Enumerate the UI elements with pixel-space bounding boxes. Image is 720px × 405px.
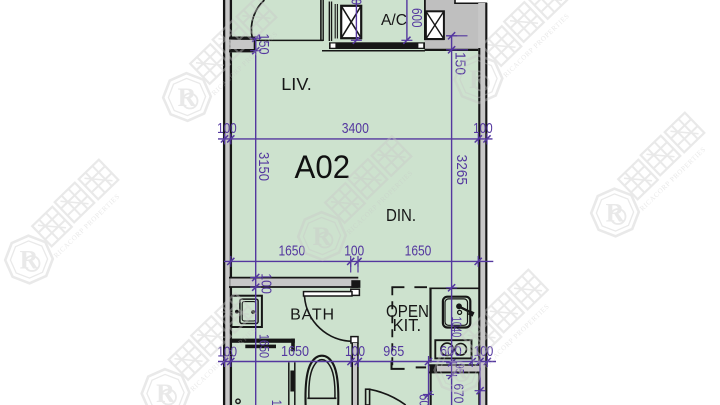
svg-text:0: 0 (347, 0, 364, 5)
svg-text:1650: 1650 (257, 334, 272, 358)
svg-text:1650: 1650 (281, 343, 309, 360)
svg-text:1650: 1650 (405, 243, 432, 260)
svg-text:600: 600 (416, 394, 431, 405)
svg-text:1: 1 (269, 400, 284, 405)
svg-text:600: 600 (408, 8, 425, 28)
svg-text:100: 100 (257, 273, 274, 294)
svg-text:3400: 3400 (342, 120, 369, 137)
svg-text:LIV.: LIV. (281, 74, 312, 94)
svg-text:965: 965 (383, 343, 404, 360)
svg-text:100: 100 (344, 243, 364, 260)
svg-text:BATH: BATH (290, 307, 335, 324)
svg-text:3265: 3265 (453, 155, 470, 185)
svg-text:KIT.: KIT. (393, 315, 422, 335)
svg-text:100: 100 (345, 343, 365, 360)
svg-text:1040: 1040 (449, 317, 464, 338)
svg-text:100: 100 (217, 120, 237, 137)
svg-text:100: 100 (473, 120, 493, 137)
svg-text:3150: 3150 (255, 152, 272, 181)
svg-text:DIN.: DIN. (386, 205, 416, 225)
svg-text:R: R (156, 379, 175, 405)
svg-text:A/C: A/C (381, 12, 407, 29)
svg-text:A02: A02 (295, 148, 351, 185)
